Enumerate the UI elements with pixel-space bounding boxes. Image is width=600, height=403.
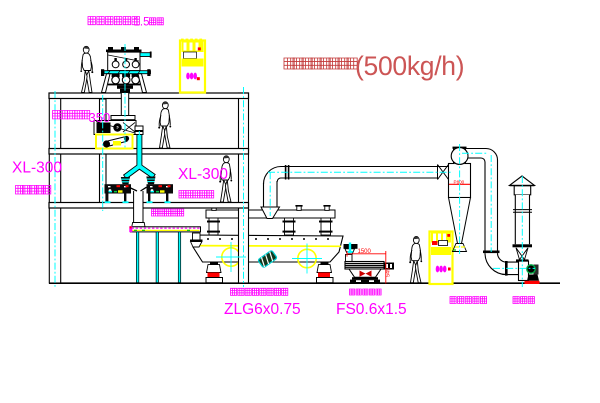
svg-text:ZLG6x0.75: ZLG6x0.75 (224, 301, 301, 318)
svg-text:545: 545 (386, 268, 392, 277)
svg-text:350: 350 (89, 110, 111, 125)
svg-text:P800: P800 (454, 179, 465, 184)
svg-text:(500kg/h): (500kg/h) (355, 51, 464, 81)
svg-text:XL-300: XL-300 (178, 166, 228, 183)
svg-text:1500: 1500 (358, 249, 372, 255)
svg-text:1.5: 1.5 (134, 17, 150, 29)
svg-text:FS0.6x1.5: FS0.6x1.5 (336, 301, 407, 318)
svg-text:XL-300: XL-300 (12, 160, 62, 177)
